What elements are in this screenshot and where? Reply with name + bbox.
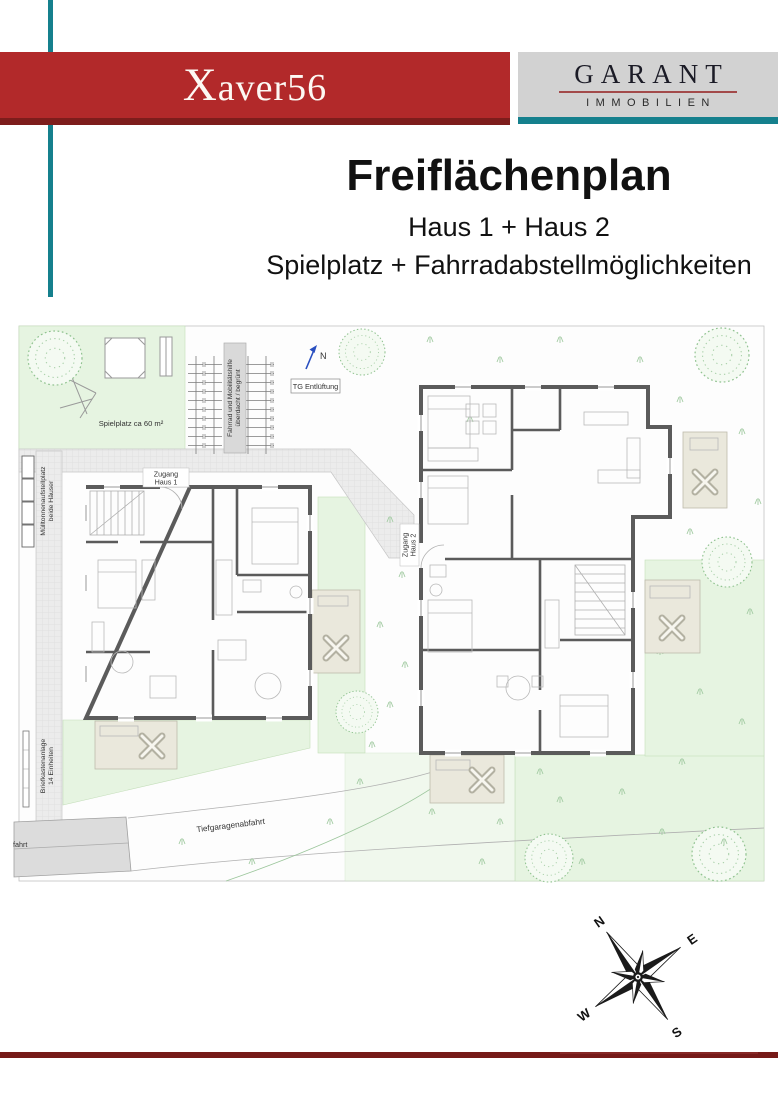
muelltonnen-line2: beide Häuser <box>48 480 55 521</box>
north-label: N <box>320 351 327 361</box>
briefkasten-line1: Briefkastenanlage <box>40 739 47 794</box>
zugang-haus2-label: Zugang Haus 2 <box>400 524 419 566</box>
tg-vent-text: TG Entlüftung <box>293 382 339 391</box>
mailbox-unit <box>23 731 29 807</box>
spielplatz-label: Spielplatz ca 60 m² <box>99 419 164 428</box>
zugang-haus1-line2: Haus 1 <box>155 478 178 487</box>
compass-west-label: W <box>575 1005 594 1025</box>
sandbox <box>105 338 145 378</box>
bike-parking: Fahrrad und Mobilitätshilfe überdacht / … <box>188 343 274 454</box>
terrace <box>95 721 177 769</box>
briefkasten-line2: 14 Einheiten <box>48 747 55 785</box>
terrace <box>430 755 504 803</box>
logo-divider <box>559 91 737 93</box>
muelltonnen-line1: Mülltonnenaufstellplatz <box>40 466 47 536</box>
compass-east-label: E <box>684 930 700 947</box>
terrace <box>312 590 360 673</box>
company-logo: GARANT IMMOBILIEN <box>518 52 778 117</box>
terrace <box>683 432 727 508</box>
banner-shadow <box>0 118 510 125</box>
zugang-haus1-label: Zugang Haus 1 <box>143 468 189 487</box>
terrace <box>645 580 700 653</box>
logo-brand-text: GARANT <box>567 61 729 88</box>
logo-subtitle: IMMOBILIEN <box>580 97 716 109</box>
logo-teal-bar <box>518 117 778 124</box>
bike-parking-label-line1: Fahrrad und Mobilitätshilfe <box>227 359 234 437</box>
zufahrt-label: fahrt <box>13 840 27 849</box>
tg-vent-label: TG Entlüftung <box>291 379 340 393</box>
compass-rose: N E S W <box>536 875 739 1080</box>
bottom-accent-highlight <box>560 1052 758 1054</box>
site-plan: Fahrrad und Mobilitätshilfe überdacht / … <box>0 0 778 1100</box>
project-banner: Xaver56 <box>0 52 510 118</box>
compass-north-label: N <box>591 913 607 931</box>
project-title: Xaver56 <box>183 62 327 109</box>
bike-parking-label-line2: überdacht / begrünt <box>235 369 242 426</box>
compass-south-label: S <box>669 1023 685 1040</box>
compass-points <box>564 902 711 1049</box>
zugang-haus2-line2: Haus 2 <box>409 534 418 557</box>
